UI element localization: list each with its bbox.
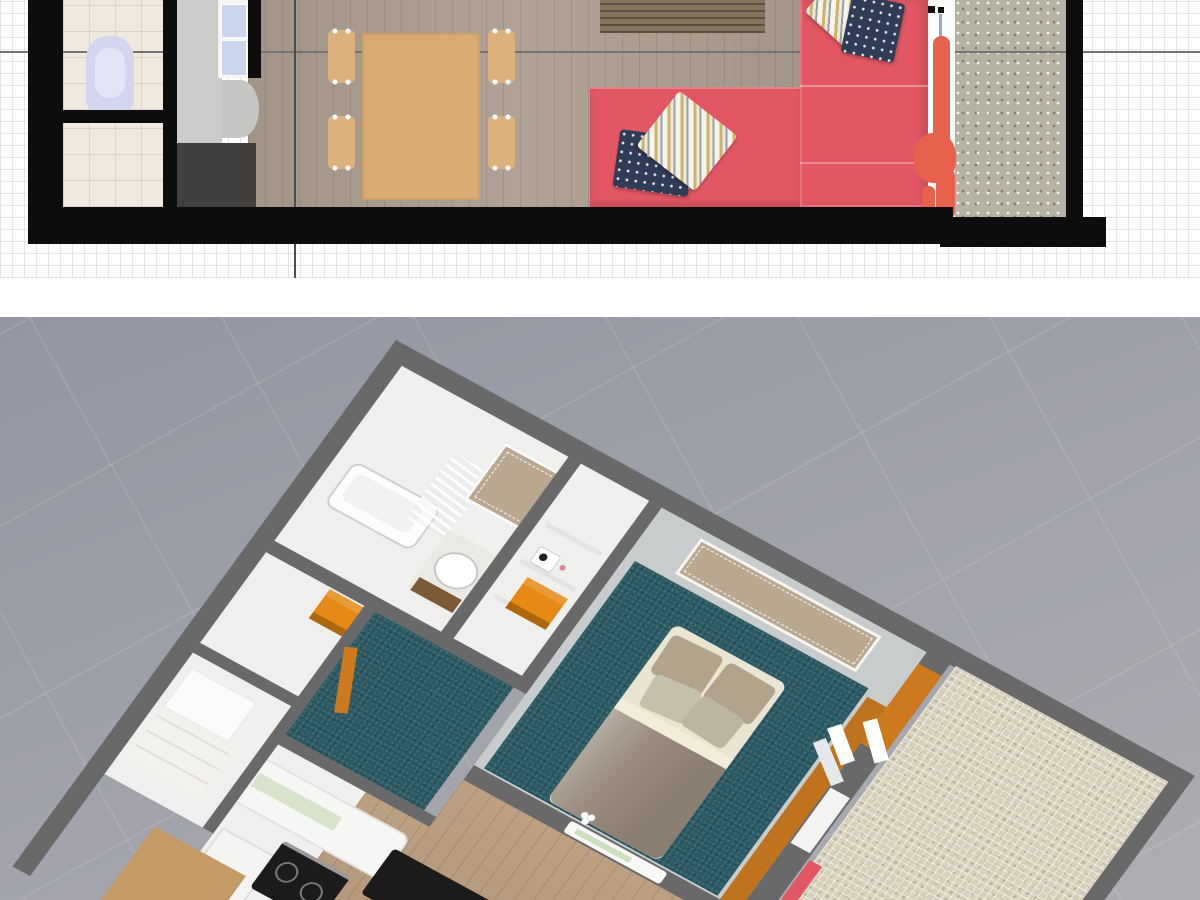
coffee-maker-dot <box>537 552 549 562</box>
bathroom-divider-wall <box>63 110 163 123</box>
kitchen-wall-stub <box>248 0 261 78</box>
sofa-seam <box>800 162 928 164</box>
burner <box>295 878 327 900</box>
balcony-gravel-floor <box>955 0 1066 218</box>
bathroom-right-wall <box>163 0 177 207</box>
door-handle <box>928 6 935 13</box>
toilet-seat <box>95 48 125 98</box>
door-handle <box>938 7 944 13</box>
dining-chair <box>488 116 515 169</box>
kitchen-sink <box>221 80 259 138</box>
fridge-shelf <box>221 40 247 76</box>
balcony-right-wall <box>1066 0 1083 221</box>
sofa-seam <box>800 85 928 87</box>
burner <box>271 858 303 886</box>
dining-chair <box>488 30 515 83</box>
dining-chair <box>328 116 355 169</box>
dining-chair <box>328 30 355 83</box>
bathroom-floor-lower <box>63 123 163 207</box>
balcony-bottom-wall <box>940 217 1106 247</box>
dining-table <box>362 33 480 200</box>
plan-2d-canvas[interactable] <box>0 0 1200 317</box>
area-rug <box>600 0 765 33</box>
view-3d-canvas[interactable] <box>0 317 1200 900</box>
base-cabinet <box>177 143 256 207</box>
toilet <box>86 36 134 112</box>
fridge <box>218 0 248 78</box>
outer-wall-bottom <box>28 207 953 244</box>
fridge-shelf <box>221 4 247 38</box>
